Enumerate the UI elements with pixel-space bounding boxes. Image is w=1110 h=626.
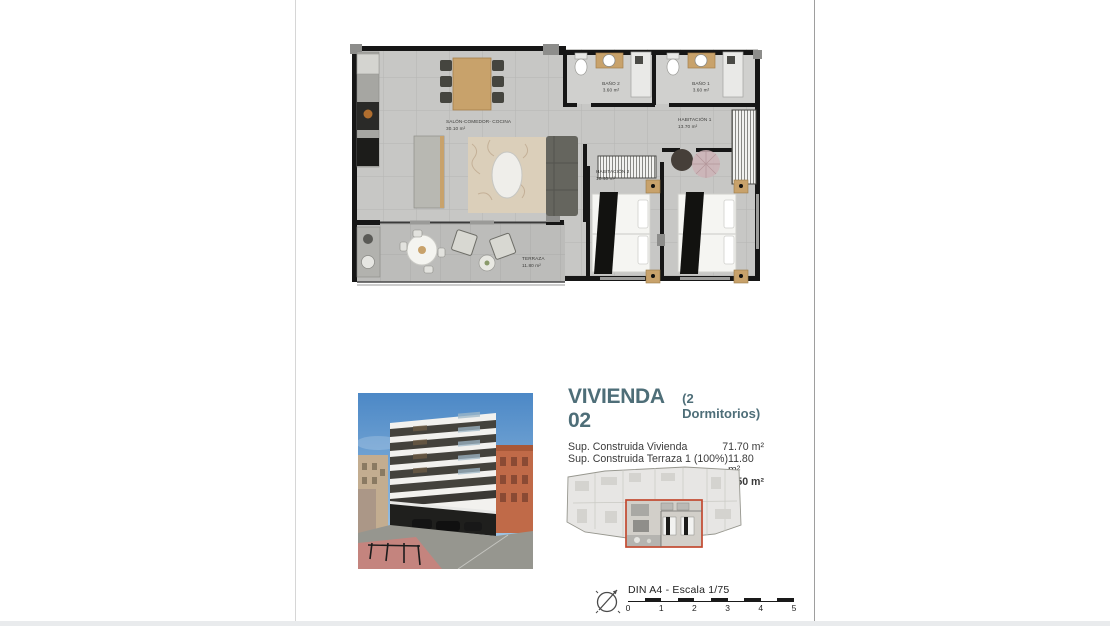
building-photo (358, 393, 533, 569)
scale-tick: 2 (692, 603, 697, 613)
scale-ticks: 0 1 2 3 4 5 (628, 603, 794, 614)
room-area-salon: 30.10 m² (446, 126, 466, 131)
scale-tick: 4 (758, 603, 763, 613)
surface-value: 71.70 m² (722, 442, 764, 454)
room-area-habitacion1: 13.70 m² (678, 124, 698, 129)
room-area-bano1: 3.60 m² (693, 88, 710, 93)
main-building (390, 412, 496, 536)
unit-title: VIVIENDA 02 (568, 385, 677, 433)
scale-bar-group: DIN A4 - Escala 1/75 0 1 2 3 4 5 (592, 582, 807, 622)
room-label-habitacion2: HABITACIÓN 2 (596, 168, 630, 174)
scale-ruler (628, 598, 794, 602)
side-buildings-left (358, 455, 388, 537)
scale-tick: 3 (725, 603, 730, 613)
scale-tick: 0 (626, 603, 631, 613)
room-label-bano1: BAÑO 1 (692, 80, 710, 86)
floor-plan: SALÓN-COMEDOR- COCINA 30.10 m² BAÑO 2 3.… (350, 44, 766, 288)
room-area-habitacion2: 10.40 m² (596, 176, 616, 181)
scale-bar: DIN A4 - Escala 1/75 0 1 2 3 4 5 (628, 584, 795, 614)
scale-tick: 5 (792, 603, 797, 613)
room-area-bano2: 3.60 m² (603, 88, 620, 93)
key-plan (565, 465, 745, 551)
north-compass-icon (592, 585, 624, 617)
room-label-terraza: TERRAZA (522, 256, 545, 261)
page-bottom-edge (0, 621, 1110, 626)
room-area-terraza: 11.80 m² (522, 263, 541, 268)
document-page: SALÓN-COMEDOR- COCINA 30.10 m² BAÑO 2 3.… (0, 0, 1110, 626)
page-left-edge (295, 0, 296, 626)
dining-table (440, 58, 504, 110)
living-area (414, 136, 578, 216)
unit-subtitle: (2 Dormitorios) (682, 391, 764, 421)
page-right-edge (814, 0, 815, 626)
room-label-habitacion1: HABITACIÓN 1 (678, 116, 712, 122)
room-label-salon: SALÓN-COMEDOR- COCINA (446, 118, 512, 124)
room-label-bano2: BAÑO 2 (602, 80, 620, 86)
surface-label: Sup. Construida Terraza 1 (100%) (568, 453, 728, 465)
surface-label: Sup. Construida Vivienda (568, 441, 687, 453)
unit-title-row: VIVIENDA 02 (2 Dormitorios) (568, 385, 764, 433)
scale-label: DIN A4 - Escala 1/75 (628, 584, 795, 596)
kitchen-units (357, 52, 379, 167)
scale-tick: 1 (659, 603, 664, 613)
